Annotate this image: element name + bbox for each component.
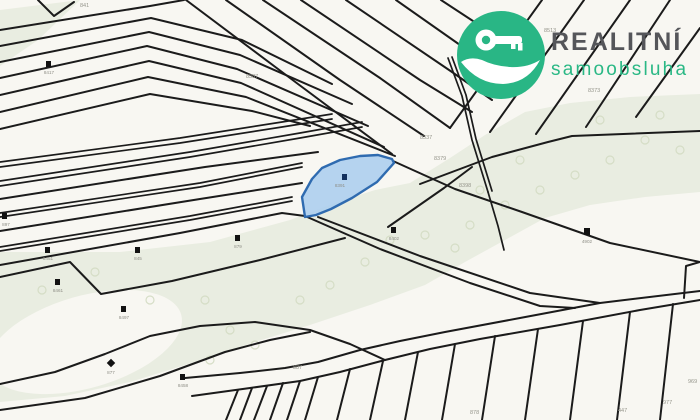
parcel-label: 887 bbox=[293, 365, 302, 371]
svg-text:8391: 8391 bbox=[335, 183, 346, 188]
svg-text:8417: 8417 bbox=[44, 70, 55, 75]
parcel-label: 8387 bbox=[246, 74, 258, 80]
parcel-label: 841 bbox=[80, 3, 89, 9]
logo-circle bbox=[457, 11, 545, 99]
parcel-label: 977 bbox=[663, 400, 672, 406]
parcel-label: 8337 bbox=[420, 135, 432, 141]
svg-text:879: 879 bbox=[234, 244, 242, 249]
svg-text:877: 877 bbox=[107, 370, 115, 375]
parcel-label: 8379 bbox=[434, 156, 446, 162]
svg-text:8458: 8458 bbox=[178, 383, 189, 388]
parcel-label: 8398 bbox=[459, 183, 471, 189]
svg-text:8402: 8402 bbox=[389, 236, 400, 241]
cadastral-map-viewport[interactable]: 841 8387 8513 8373 8337 8379 8398 887 87… bbox=[0, 0, 700, 420]
svg-text:8497: 8497 bbox=[119, 315, 130, 320]
svg-text:8461: 8461 bbox=[53, 288, 64, 293]
logo-brand-text: REALITNÍ bbox=[551, 27, 682, 56]
svg-text:897: 897 bbox=[2, 222, 10, 227]
svg-text:8451: 8451 bbox=[43, 256, 54, 261]
svg-text:845: 845 bbox=[134, 256, 142, 261]
parcel-label: 447 bbox=[618, 408, 627, 414]
logo-subtitle-text: samoobsluha bbox=[551, 59, 688, 80]
cadastral-map-canvas[interactable]: 841 8387 8513 8373 8337 8379 8398 887 87… bbox=[0, 0, 700, 420]
parcel-label: 8373 bbox=[588, 88, 600, 94]
parcel-label: 969 bbox=[688, 379, 697, 385]
svg-text:4902: 4902 bbox=[582, 239, 593, 244]
parcel-label: 878 bbox=[470, 410, 479, 416]
